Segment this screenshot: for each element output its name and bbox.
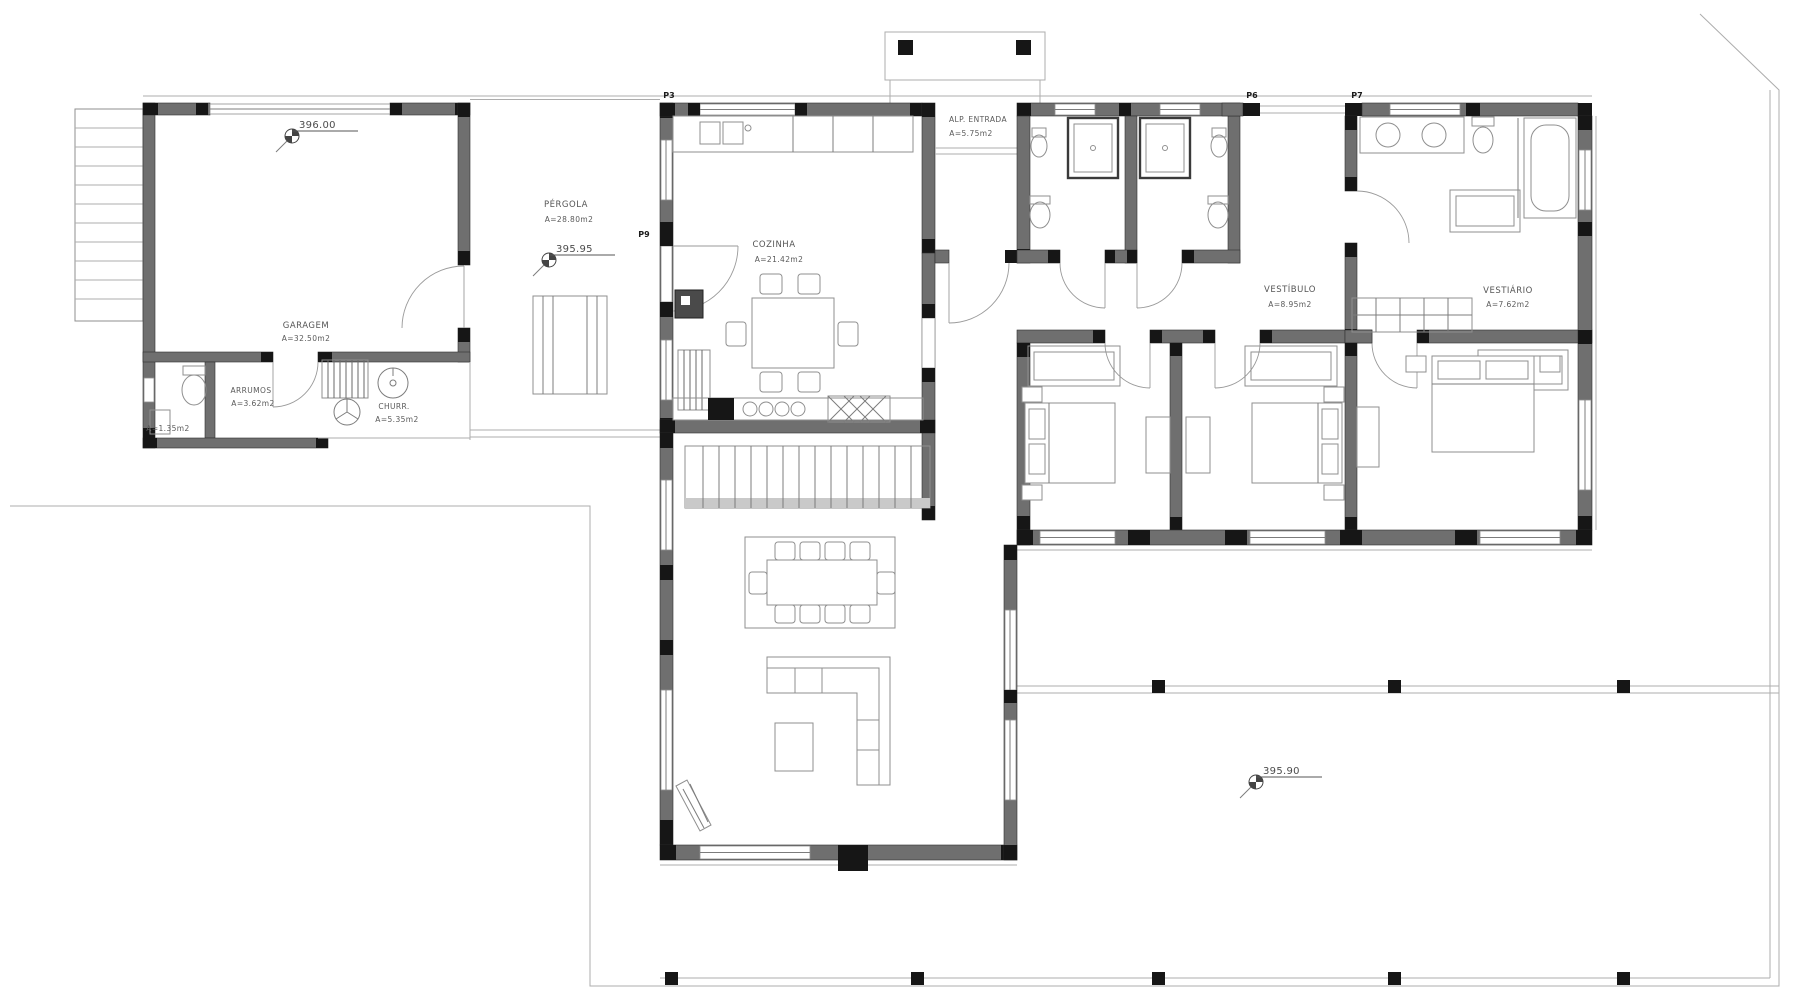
stairs-icon bbox=[685, 446, 930, 508]
door-tag-p3: P3 bbox=[663, 91, 674, 100]
bathrooms bbox=[1017, 103, 1240, 308]
dining-table-icon bbox=[745, 537, 895, 628]
fireplace-bench-icon bbox=[676, 780, 711, 831]
door-tag-p9: P9 bbox=[638, 230, 650, 239]
coffee-table-icon bbox=[775, 723, 813, 771]
label-cozinha: COZINHA bbox=[752, 240, 795, 250]
bedroom1-wardrobe-icon bbox=[1028, 346, 1120, 386]
room-labels: GARAGEM A=32.50m2 ARRUMOS A=3.62m2 A=1.3… bbox=[146, 115, 1533, 433]
label-vestibulo: VESTÍBULO bbox=[1264, 283, 1316, 295]
label-pergola-area: A=28.80m2 bbox=[545, 215, 594, 224]
stove-icon bbox=[673, 396, 923, 422]
bed-icon-bedroom2 bbox=[1252, 387, 1344, 500]
entry-portico bbox=[885, 32, 1045, 103]
label-arrumos-area: A=3.62m2 bbox=[231, 399, 274, 408]
label-churrasqueira: CHURR. bbox=[378, 402, 409, 411]
elevation-value-terraco: 395.90 bbox=[1263, 766, 1300, 777]
wardrobe-icon bbox=[1352, 298, 1472, 332]
kitchen-table-icon bbox=[726, 274, 858, 392]
fridge-icon bbox=[678, 350, 710, 410]
floor-plan-canvas: GARAGEM A=32.50m2 ARRUMOS A=3.62m2 A=1.3… bbox=[0, 0, 1800, 1000]
elevation-value-garagem: 396.00 bbox=[299, 120, 336, 131]
door-tag-p6: P6 bbox=[1246, 91, 1258, 100]
label-cozinha-area: A=21.42m2 bbox=[755, 255, 804, 264]
pergola-area bbox=[470, 100, 660, 438]
elevation-marker-terraco: 395.90 bbox=[1240, 766, 1322, 798]
kitchen-counter-icon bbox=[673, 116, 913, 152]
pergola-posts-icon bbox=[533, 296, 607, 394]
elevation-marker-pergola: 395.95 bbox=[533, 244, 615, 276]
label-arrumos: ARRUMOS bbox=[231, 386, 272, 395]
label-entrada-area: A=5.75m2 bbox=[949, 129, 992, 138]
bathroom-walls bbox=[1017, 103, 1240, 308]
kitchen bbox=[660, 103, 935, 520]
bed-icon-master bbox=[1406, 356, 1560, 452]
vanity-sinks-icon bbox=[1360, 117, 1464, 153]
bedroom2-wardrobe-icon bbox=[1245, 346, 1337, 386]
label-entrada: ALP. ENTRADA bbox=[949, 115, 1007, 124]
label-garagem-area: A=32.50m2 bbox=[282, 334, 331, 343]
floor-plan-sheet: GARAGEM A=32.50m2 ARRUMOS A=3.62m2 A=1.3… bbox=[0, 0, 1800, 1000]
cabinet-icon bbox=[1450, 190, 1520, 232]
terrace-columns bbox=[665, 680, 1630, 985]
door-tag-p7: P7 bbox=[1351, 91, 1362, 100]
bathtub-icon bbox=[1518, 118, 1576, 218]
garage-deck-stairs-icon bbox=[75, 109, 143, 321]
label-wc-area: A=1.35m2 bbox=[146, 424, 189, 433]
elevation-value-pergola: 395.95 bbox=[556, 244, 593, 255]
dressing-toilet-icon bbox=[1472, 117, 1494, 153]
bbq-grill-icon bbox=[318, 360, 470, 440]
label-churrasqueira-area: A=5.35m2 bbox=[375, 415, 418, 424]
label-vestibulo-area: A=8.95m2 bbox=[1268, 300, 1311, 309]
bed-icon-bedroom1 bbox=[1022, 387, 1115, 500]
entrance-porch bbox=[935, 148, 1017, 323]
label-vestiario-area: A=7.62m2 bbox=[1486, 300, 1529, 309]
label-garagem: GARAGEM bbox=[283, 321, 329, 331]
garage-walls bbox=[143, 103, 470, 448]
living-room bbox=[660, 433, 1017, 871]
sofa-icon bbox=[767, 657, 890, 785]
label-vestiario: VESTIÁRIO bbox=[1483, 284, 1533, 296]
bedrooms bbox=[1017, 343, 1592, 545]
elevation-marker-garagem: 396.00 bbox=[276, 120, 358, 152]
label-pergola: PÉRGOLA bbox=[544, 198, 588, 210]
kitchen-appliance-window bbox=[681, 296, 690, 305]
garage-block bbox=[75, 103, 470, 448]
